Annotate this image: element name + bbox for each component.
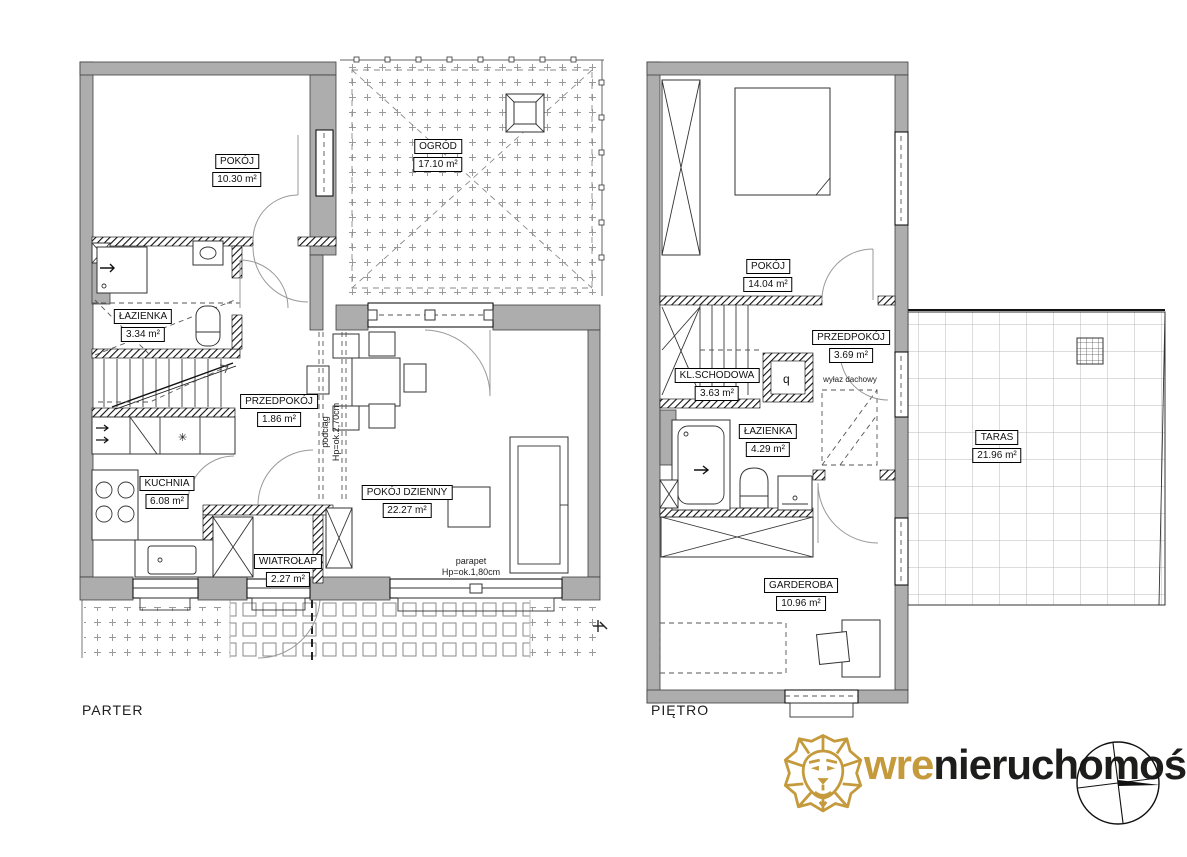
boiler-symbol: q [783, 372, 790, 386]
room-name: POKÓJ [746, 259, 790, 274]
beam-annotation: podciąg Hp=ok.2,70cm [320, 403, 342, 461]
room-name: OGRÓD [414, 139, 462, 154]
room-area: 1.86 m² [257, 412, 301, 427]
sill-height: Hp=ok.1,80cm [442, 567, 500, 577]
room-name: ŁAZIENKA [114, 309, 172, 324]
room-label-lazienka-parter: ŁAZIENKA 3.34 m² [114, 306, 172, 342]
room-area: 2.27 m² [266, 572, 310, 587]
north-arrow-icon [1074, 739, 1162, 827]
room-area: 22.27 m² [382, 503, 431, 518]
room-name: KUCHNIA [139, 476, 194, 491]
roof-hatch-box [822, 390, 877, 465]
room-name: ŁAZIENKA [739, 424, 797, 439]
floor-title-parter: PARTER [82, 702, 144, 718]
terrace-area [908, 310, 1165, 605]
room-name: KL.SCHODOWA [675, 368, 760, 383]
parter-exterior-paving [82, 600, 600, 660]
room-name: POKÓJ DZIENNY [362, 485, 453, 500]
room-label-taras: TARAS 21.96 m² [972, 427, 1021, 463]
room-label-pokoj-pietro: POKÓJ 14.04 m² [743, 256, 792, 292]
room-name: PRZEDPOKÓJ [240, 394, 318, 409]
room-label-lazienka-pietro: ŁAZIENKA 4.29 m² [739, 421, 797, 457]
room-area: 4.29 m² [746, 442, 790, 457]
parter-plan: ✳ Z [80, 57, 607, 660]
sill-annotation: parapet Hp=ok.1,80cm [442, 556, 500, 578]
room-name: TARAS [976, 430, 1019, 445]
room-area: 3.63 m² [695, 386, 739, 401]
room-name: GARDEROBA [764, 578, 838, 593]
garden-area [340, 57, 604, 296]
fridge-symbol: ✳ [178, 432, 187, 444]
room-label-przedpokoj-pietro: PRZEDPOKÓJ 3.69 m² [812, 327, 890, 363]
sill-label: parapet [456, 556, 487, 566]
brand-primary: wre [864, 741, 933, 788]
lion-logo-icon [782, 731, 864, 817]
room-name: POKÓJ [215, 154, 259, 169]
beam-height: Hp=ok.2,70cm [331, 403, 341, 461]
room-label-pokoj-parter: POKÓJ 10.30 m² [212, 151, 261, 187]
room-label-pokoj-dzienny: POKÓJ DZIENNY 22.27 m² [362, 482, 453, 518]
garden-skylight [506, 94, 544, 132]
room-area: 10.96 m² [776, 596, 825, 611]
roof-hatch-annotation: wyłaz dachowy [823, 374, 877, 385]
room-area: 21.96 m² [972, 448, 1021, 463]
room-label-wiatrolap: WIATROŁAP 2.27 m² [254, 551, 322, 587]
room-label-ogrod: OGRÓD 17.10 m² [413, 136, 462, 172]
room-area: 17.10 m² [413, 157, 462, 172]
room-area: 6.08 m² [145, 494, 189, 509]
pietro-wardrobe [661, 517, 813, 557]
room-label-garderoba: GARDEROBA 10.96 m² [764, 575, 838, 611]
floorplan-sheet: ✳ Z [0, 0, 1187, 857]
room-name: PRZEDPOKÓJ [812, 330, 890, 345]
floor-title-pietro: PIĘTRO [651, 702, 709, 718]
beam-label: podciąg [320, 416, 330, 448]
room-label-kuchnia: KUCHNIA 6.08 m² [139, 473, 194, 509]
room-area: 3.34 m² [121, 327, 165, 342]
room-label-przedpokoj-parter: PRZEDPOKÓJ 1.86 m² [240, 391, 318, 427]
room-area: 3.69 m² [829, 348, 873, 363]
room-label-kl-schodowa: KL.SCHODOWA 3.63 m² [675, 365, 760, 401]
room-name: WIATROŁAP [254, 554, 322, 569]
room-area: 10.30 m² [212, 172, 261, 187]
room-area: 14.04 m² [743, 277, 792, 292]
